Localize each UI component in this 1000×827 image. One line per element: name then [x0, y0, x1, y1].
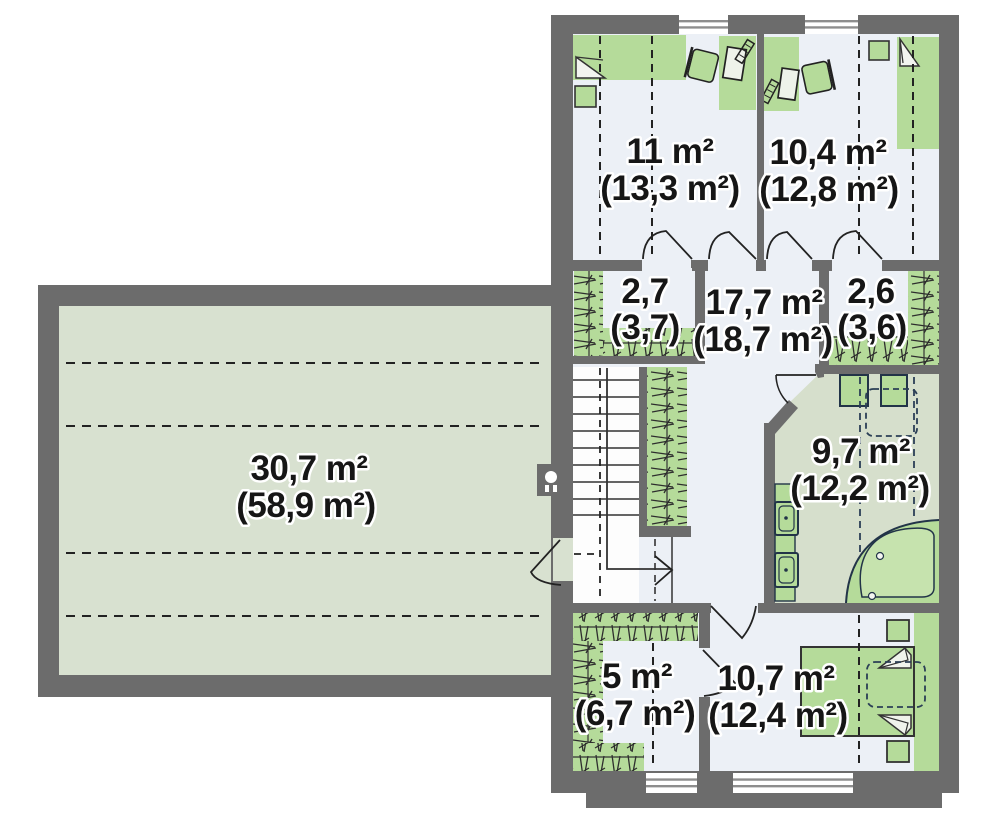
- svg-text:(58,9 m²): (58,9 m²): [236, 486, 375, 525]
- svg-text:17,7 m²: 17,7 m²: [705, 283, 822, 322]
- svg-text:(18,7 m²): (18,7 m²): [693, 320, 832, 359]
- svg-text:2,7: 2,7: [621, 272, 668, 311]
- svg-text:2,6: 2,6: [847, 272, 894, 311]
- svg-text:(12,8 m²): (12,8 m²): [759, 170, 898, 209]
- svg-text:(12,2 m²): (12,2 m²): [790, 469, 929, 508]
- svg-text:10,7 m²: 10,7 m²: [717, 659, 834, 698]
- svg-text:(3,7): (3,7): [610, 308, 679, 347]
- svg-text:(3,6): (3,6): [837, 308, 906, 347]
- svg-text:5 m²: 5 m²: [602, 657, 672, 696]
- svg-text:(13,3 m²): (13,3 m²): [600, 169, 739, 208]
- svg-text:9,7 m²: 9,7 m²: [812, 432, 910, 471]
- svg-text:(12,4 m²): (12,4 m²): [708, 696, 847, 735]
- svg-text:30,7 m²: 30,7 m²: [250, 449, 367, 488]
- svg-text:(6,7 m²): (6,7 m²): [575, 694, 695, 733]
- svg-text:10,4 m²: 10,4 m²: [769, 133, 886, 172]
- svg-text:11 m²: 11 m²: [627, 132, 714, 171]
